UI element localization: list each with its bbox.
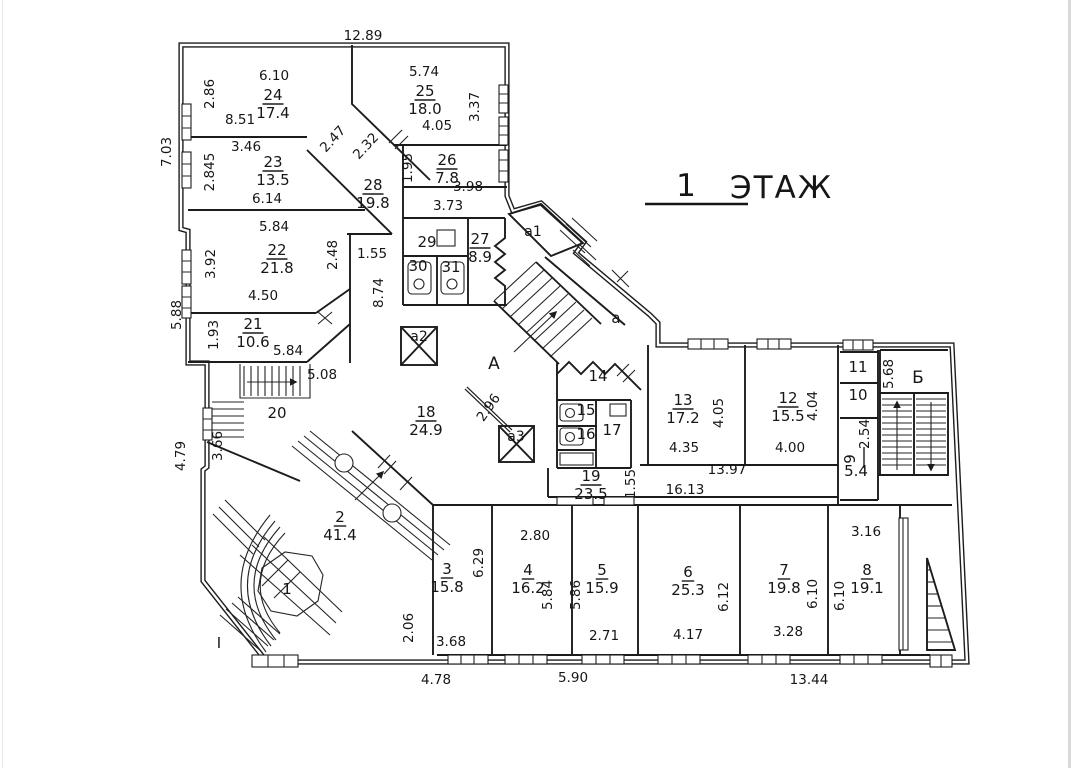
room-number: 30	[408, 257, 427, 275]
room-number: 16	[576, 425, 595, 443]
dimension-label: 3.73	[433, 198, 463, 214]
room-area: 17.4	[256, 104, 289, 122]
room-area: 19.8	[356, 194, 389, 212]
zone-label: а1	[524, 224, 542, 240]
dimension-label: 2.54	[857, 419, 873, 449]
dimension-label: 13.44	[790, 672, 829, 688]
room-number: 12	[778, 389, 797, 407]
room-number: 7	[779, 561, 789, 579]
floor-word: ЭТАЖ	[730, 170, 833, 206]
zone-label: I	[217, 634, 221, 652]
room-number: 28	[363, 176, 382, 194]
dimension-label: 12.89	[344, 28, 383, 44]
room-area: 41.4	[323, 526, 356, 544]
zone-label: Б	[912, 368, 924, 388]
floor-plan-page: 1 ЭТАЖ 2417.42518.02313.5267.82819.82221…	[0, 0, 1072, 768]
zone-label: А	[488, 354, 500, 374]
dimension-label: 5.86	[568, 580, 584, 610]
dimension-label: 6.10	[832, 581, 848, 611]
stair-exterior-steps	[927, 558, 955, 667]
room1-curved-walls	[213, 500, 342, 652]
dimension-label: 2.80	[520, 528, 550, 544]
dimension-label: 3.46	[231, 139, 261, 155]
dimension-label: 5.84	[273, 343, 303, 359]
dimension-label: 7.03	[159, 137, 175, 167]
room-number: 26	[437, 151, 456, 169]
room-number: 18	[416, 403, 435, 421]
dimension-label: 5.84	[259, 219, 289, 235]
dimension-label: 2.32	[350, 130, 382, 163]
room-number: 27	[470, 230, 489, 248]
room-number: 1	[282, 580, 292, 598]
dimension-label: 6.29	[471, 548, 487, 578]
room-number: 6	[683, 563, 693, 581]
room-area: 19.1	[850, 579, 883, 597]
stair-B-steps	[880, 393, 948, 475]
room-number: 21	[243, 315, 262, 333]
room-number: 25	[415, 82, 434, 100]
dimension-label: 2.86	[202, 79, 218, 109]
dimension-label: 4.35	[669, 440, 699, 456]
room-area: 8.9	[468, 248, 492, 266]
room-number: 2	[335, 508, 345, 526]
dimension-label: 1.95	[400, 153, 416, 183]
dimension-label: 8.51	[225, 112, 255, 128]
room-number: 19	[581, 467, 600, 485]
dimension-label: 5.08	[307, 367, 337, 383]
dimension-label: 3.16	[851, 524, 881, 540]
zone-label: а2	[410, 329, 428, 345]
room-area: 13.5	[256, 171, 289, 189]
dimension-label: 3.28	[773, 624, 803, 640]
room-area: 18.0	[408, 100, 441, 118]
dimension-label: 16.13	[666, 482, 705, 498]
dimension-label: 3.37	[467, 92, 483, 122]
floor-number: 1	[676, 168, 696, 204]
room-number: 10	[848, 386, 867, 404]
dimension-label: 1.55	[623, 469, 639, 499]
dimension-label: 4.79	[173, 441, 189, 471]
dimension-label: 4.50	[248, 288, 278, 304]
dimension-label: 5.68	[881, 359, 897, 389]
dimension-label: 4.78	[421, 672, 451, 688]
room-number: 4	[523, 561, 533, 579]
dimension-label: 6.10	[805, 579, 821, 609]
room-area: 24.9	[409, 421, 442, 439]
room-number: 31	[441, 258, 460, 276]
dimension-label: 1.55	[357, 246, 387, 262]
dimension-label: 5.88	[169, 300, 185, 330]
dimension-label: 2.47	[317, 123, 349, 156]
room-area: 5.4	[844, 462, 868, 480]
dimension-label: 2.71	[589, 628, 619, 644]
dimension-label: 4.04	[805, 391, 821, 421]
dimension-label: 3.98	[453, 179, 483, 195]
dimension-label: 4.17	[673, 627, 703, 643]
room-number: 5	[597, 561, 607, 579]
dimension-label: 2.845	[202, 153, 218, 192]
zone-label: а	[611, 309, 620, 327]
room-number: 24	[263, 86, 282, 104]
room-number: 20	[267, 404, 286, 422]
room-area: 25.3	[671, 581, 704, 599]
dimension-label: 6.14	[252, 191, 282, 207]
dimension-label: 3.92	[203, 249, 219, 279]
room-area: 19.8	[767, 579, 800, 597]
room-area: 17.2	[666, 409, 699, 427]
room-area: 15.5	[771, 407, 804, 425]
porch-steps	[220, 597, 298, 667]
room-area: 15.8	[430, 578, 463, 596]
dimension-label: 4.05	[711, 398, 727, 428]
room-area: 15.9	[585, 579, 618, 597]
dimension-label: 2.06	[401, 613, 417, 643]
dimension-label: 5.84	[540, 580, 556, 610]
dimension-label: 3.66	[210, 431, 226, 461]
room-number: 3	[442, 560, 452, 578]
stair-A-steps	[494, 262, 592, 357]
dimension-label: 2.48	[325, 240, 341, 270]
room-number: 13	[673, 391, 692, 409]
room-number: 17	[602, 421, 621, 439]
dimension-label: 5.90	[558, 670, 588, 686]
dimension-label: 3.68	[436, 634, 466, 650]
dimension-label: 6.12	[716, 582, 732, 612]
dimension-label: 6.10	[259, 68, 289, 84]
dimension-label: 4.00	[775, 440, 805, 456]
dimension-label: 8.74	[371, 278, 387, 308]
dimension-label: 13.97	[708, 462, 747, 478]
drawing-title: 1 ЭТАЖ	[645, 168, 833, 206]
room-number: 22	[267, 241, 286, 259]
room-area: 10.6	[236, 333, 269, 351]
room-number: 11	[848, 358, 867, 376]
room-area: 23.5	[574, 485, 607, 503]
scan-edge-left	[2, 0, 3, 768]
zone-label: а3	[507, 429, 525, 445]
dimension-label: 5.74	[409, 64, 439, 80]
room-number: 29	[417, 233, 436, 251]
floor-plan-drawing: 1 ЭТАЖ 2417.42518.02313.5267.82819.82221…	[0, 0, 1072, 768]
room-number: 14	[588, 367, 607, 385]
room2-glazing	[292, 431, 450, 560]
room-number: 8	[862, 561, 872, 579]
scan-edge-right	[1068, 0, 1071, 768]
room-number: 15	[576, 401, 595, 419]
stair-20-steps	[212, 364, 310, 437]
dimension-label: 4.05	[422, 118, 452, 134]
room-area: 21.8	[260, 259, 293, 277]
room-number: 23	[263, 153, 282, 171]
dimension-label: 1.93	[206, 320, 222, 350]
